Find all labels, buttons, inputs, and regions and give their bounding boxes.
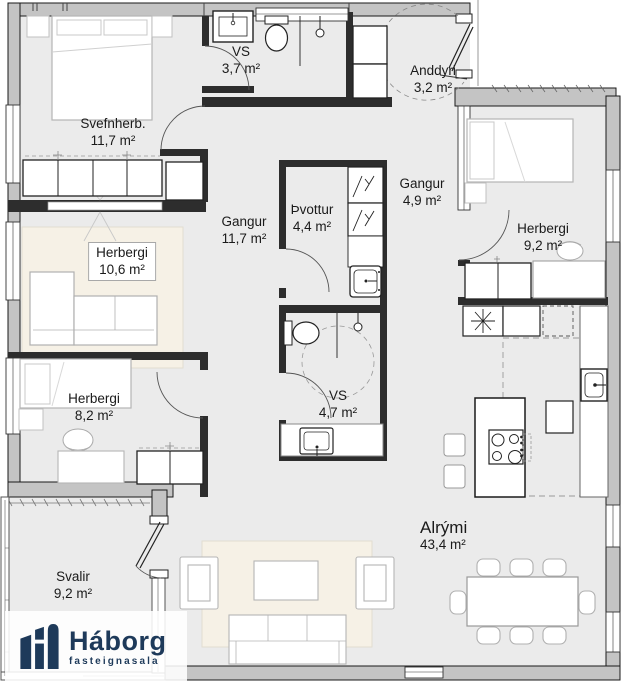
desk (533, 261, 605, 298)
room-name: Alrými (420, 518, 467, 537)
wardrobe (465, 256, 531, 299)
logo-tagline: fasteignasala (69, 656, 167, 667)
room-label-vs-lower: VS 4,7 m² (319, 388, 357, 421)
nightstand (27, 16, 49, 37)
room-area: 4,4 m² (293, 219, 331, 236)
room-area: 43,4 m² (420, 537, 466, 554)
room-label-herbergi-east: Herbergi 9,2 m² (517, 221, 569, 254)
laundry-sink-icon (350, 266, 381, 297)
room-area: 10,6 m² (99, 262, 145, 279)
floorplan-page: Svefnherb. 11,7 m² VS 3,7 m² Anddyri 3,2… (0, 0, 624, 685)
logo-text: Háborg fasteignasala (69, 627, 167, 667)
room-label-gangur-main: Gangur 11,7 m² (221, 214, 266, 247)
room-label-herbergi-southwest: Herbergi 8,2 m² (68, 391, 120, 424)
room-area: 9,2 m² (54, 586, 92, 603)
nightstand (152, 16, 172, 37)
room-name: Herbergi (96, 245, 148, 262)
haborg-logo-icon (18, 623, 60, 670)
coffee-table (254, 561, 318, 600)
door-jamb (456, 70, 472, 78)
room-name: Anddyri (410, 63, 456, 80)
room-name: Svefnherb. (80, 116, 145, 133)
door-jamb (456, 14, 472, 23)
room-label-herbergi-west: Herbergi 10,6 m² (88, 242, 156, 281)
washer-icon (348, 167, 383, 267)
closet (353, 26, 387, 98)
bathroom-sink-icon (213, 11, 253, 42)
desk-chair (63, 429, 93, 451)
nightstand (19, 409, 43, 430)
room-name: Gangur (399, 176, 444, 193)
room-area: 3,7 m² (222, 61, 260, 78)
room-area: 4,7 m² (319, 405, 357, 422)
armchair (180, 557, 218, 609)
floorplan-drawing (0, 0, 624, 685)
room-label-gangur-east: Gangur 4,9 m² (399, 176, 444, 209)
desk (58, 451, 124, 483)
dining-table (467, 577, 578, 626)
sliding-door (48, 202, 162, 210)
room-label-alrymi: Alrými 43,4 m² (420, 518, 467, 554)
room-area: 11,7 m² (222, 231, 267, 248)
toilet-icon (265, 16, 288, 51)
nightstand (465, 183, 486, 203)
room-name: Svalir (56, 569, 90, 586)
room-label-svalir: Svalir 9,2 m² (54, 569, 92, 602)
room-name: Þvottur (291, 202, 334, 219)
room-area: 11,7 m² (91, 133, 136, 150)
toilet-icon (284, 321, 319, 345)
kitchen-cabinet (546, 401, 573, 433)
room-area: 9,2 m² (524, 238, 562, 255)
room-label-anddyri: Anddyri 3,2 m² (410, 63, 456, 96)
vanity-sink-icon (281, 424, 383, 456)
dresser (166, 162, 203, 200)
room-label-thvottur: Þvottur 4,4 m² (291, 202, 334, 235)
room-area: 4,9 m² (403, 193, 441, 210)
room-area: 3,2 m² (414, 80, 452, 97)
room-name: VS (232, 44, 250, 61)
single-bed (467, 119, 573, 182)
haborg-logo: Háborg fasteignasala (5, 611, 187, 682)
room-name: VS (329, 388, 347, 405)
armchair (356, 557, 394, 609)
double-bed (52, 16, 152, 120)
room-label-vs-upper: VS 3,7 m² (222, 44, 260, 77)
room-name: Gangur (221, 214, 266, 231)
room-label-svefnherb: Svefnherb. 11,7 m² (80, 116, 145, 149)
kitchen-sink-icon (581, 369, 607, 401)
room-name: Herbergi (517, 221, 569, 238)
logo-brand: Háborg (69, 627, 167, 655)
room-area: 8,2 m² (75, 408, 113, 425)
sofa (229, 615, 346, 664)
room-name: Herbergi (68, 391, 120, 408)
